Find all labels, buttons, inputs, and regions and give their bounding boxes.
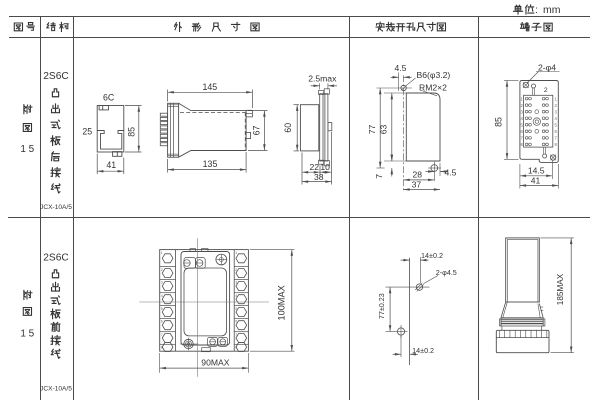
svg-text:7: 7 bbox=[374, 174, 384, 179]
svg-text:145: 145 bbox=[202, 82, 217, 92]
svg-text:2: 2 bbox=[544, 87, 548, 94]
svg-text:4.5: 4.5 bbox=[445, 167, 457, 177]
svg-text:1 5: 1 5 bbox=[20, 144, 34, 155]
svg-text:RM2×2: RM2×2 bbox=[419, 82, 447, 92]
svg-text::: : bbox=[535, 4, 538, 16]
svg-text:8: 8 bbox=[161, 346, 163, 350]
svg-text:4: 4 bbox=[161, 294, 163, 298]
svg-text:2-φ4: 2-φ4 bbox=[538, 62, 556, 72]
svg-text:8: 8 bbox=[235, 346, 237, 350]
svg-text:85: 85 bbox=[126, 127, 136, 137]
svg-text:3: 3 bbox=[161, 281, 163, 285]
svg-text:4: 4 bbox=[235, 294, 237, 298]
svg-text:JCX-10A/5: JCX-10A/5 bbox=[40, 204, 72, 211]
svg-text:5: 5 bbox=[161, 307, 163, 311]
svg-text:185MAX: 185MAX bbox=[556, 273, 565, 305]
svg-text:38: 38 bbox=[314, 172, 324, 182]
svg-text:60: 60 bbox=[283, 123, 293, 133]
svg-text:135: 135 bbox=[203, 159, 218, 169]
svg-text:14±0.2: 14±0.2 bbox=[412, 346, 434, 355]
svg-text:2: 2 bbox=[161, 268, 163, 272]
svg-text:2: 2 bbox=[235, 268, 237, 272]
svg-text:6C: 6C bbox=[103, 93, 115, 103]
svg-text:4.5: 4.5 bbox=[395, 63, 407, 73]
svg-text:90MAX: 90MAX bbox=[201, 358, 229, 368]
svg-text:2S6C: 2S6C bbox=[43, 253, 68, 264]
svg-text:37: 37 bbox=[412, 179, 422, 189]
svg-text:7: 7 bbox=[161, 333, 163, 337]
svg-text:B6(φ3.2): B6(φ3.2) bbox=[417, 70, 451, 80]
svg-text:41: 41 bbox=[106, 160, 116, 170]
svg-text:85: 85 bbox=[493, 117, 503, 127]
svg-text:63: 63 bbox=[379, 125, 389, 135]
svg-text:5: 5 bbox=[235, 307, 237, 311]
svg-text:41: 41 bbox=[531, 175, 541, 185]
svg-text:6: 6 bbox=[235, 320, 237, 324]
svg-text:14±0.2: 14±0.2 bbox=[421, 251, 443, 260]
svg-text:3: 3 bbox=[235, 281, 237, 285]
svg-text:77: 77 bbox=[367, 125, 377, 135]
svg-text:67: 67 bbox=[251, 126, 261, 136]
svg-text:28: 28 bbox=[413, 169, 423, 179]
svg-text:22: 22 bbox=[310, 162, 320, 172]
svg-text:10: 10 bbox=[320, 162, 330, 172]
svg-text:1: 1 bbox=[235, 251, 237, 255]
svg-text:77±0.23: 77±0.23 bbox=[377, 293, 386, 319]
svg-text:2-φ4.5: 2-φ4.5 bbox=[436, 268, 457, 277]
svg-text:2S6C: 2S6C bbox=[43, 71, 68, 82]
svg-text:6: 6 bbox=[161, 320, 163, 324]
svg-text:2.5max: 2.5max bbox=[308, 74, 337, 84]
svg-text:1 5: 1 5 bbox=[20, 329, 34, 340]
svg-text:mm: mm bbox=[543, 4, 561, 16]
svg-text:14.5: 14.5 bbox=[528, 166, 545, 176]
svg-text:25: 25 bbox=[82, 127, 92, 137]
svg-text:1: 1 bbox=[161, 251, 163, 255]
svg-text:JCX-10A/5: JCX-10A/5 bbox=[40, 386, 72, 393]
svg-text:100MAX: 100MAX bbox=[277, 285, 287, 320]
svg-text:7: 7 bbox=[235, 333, 237, 337]
